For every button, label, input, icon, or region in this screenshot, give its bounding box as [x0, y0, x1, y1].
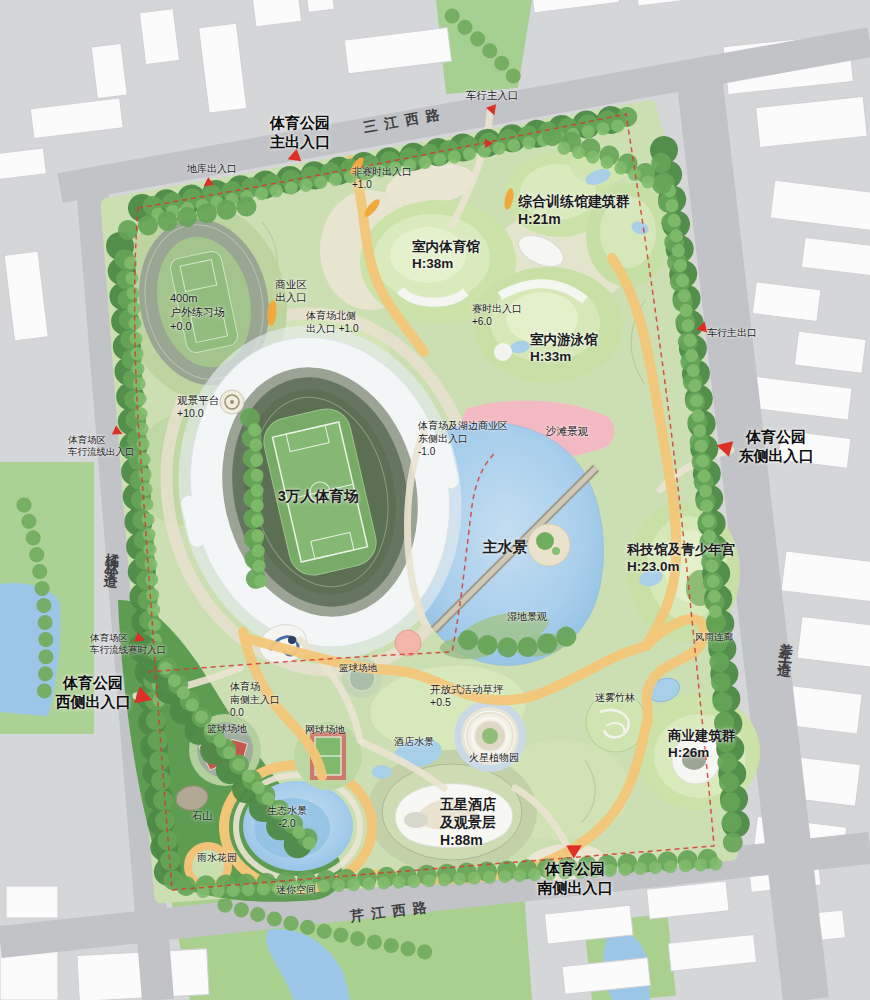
bamboo-grove	[586, 692, 646, 752]
pink-playground	[395, 630, 421, 656]
lake-island	[528, 524, 570, 566]
mars-garden	[454, 700, 526, 772]
site-plan-map	[0, 0, 870, 1000]
masterplan-canvas: 三江西路橘林大道养生大道芹江西路体育公园 主出入口体育公园 东侧出入口体育公园 …	[0, 0, 870, 1000]
hotel-area	[367, 750, 537, 874]
viewing-platform-shape	[220, 390, 244, 414]
park-layer	[101, 100, 760, 903]
swimming-hall-mound	[473, 267, 623, 383]
